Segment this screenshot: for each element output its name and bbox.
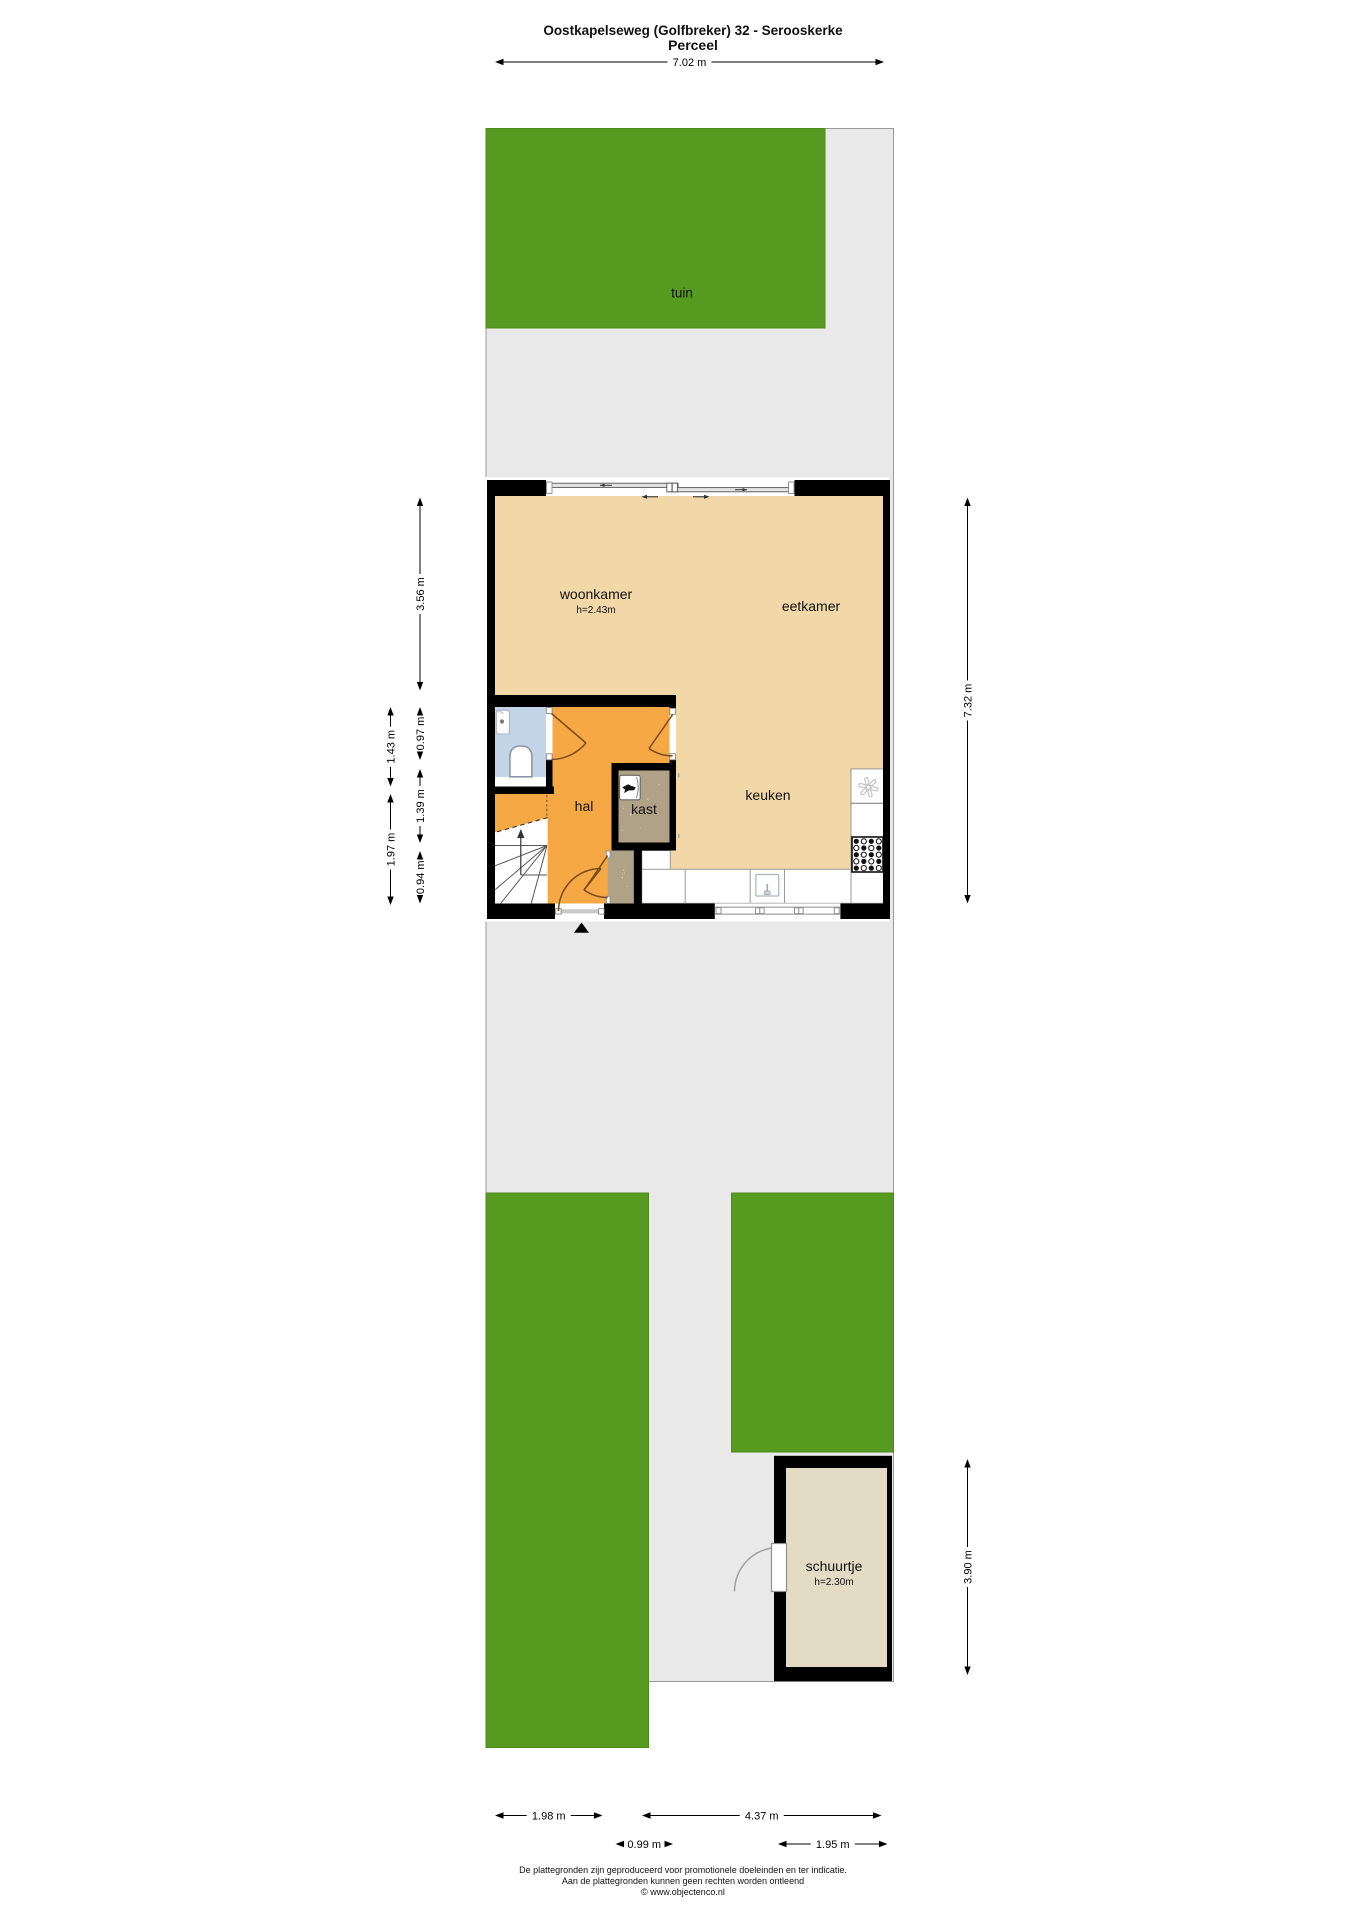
svg-text:Aan de plattegronden kunnen ge: Aan de plattegronden kunnen geen rechten… <box>562 1876 804 1886</box>
svg-text:Perceel: Perceel <box>668 37 718 53</box>
svg-text:0.97 m: 0.97 m <box>415 717 427 751</box>
svg-text:7.02 m: 7.02 m <box>673 57 707 69</box>
svg-text:woonkamer: woonkamer <box>559 586 633 602</box>
svg-text:3.90 m: 3.90 m <box>963 1550 975 1584</box>
svg-text:eetkamer: eetkamer <box>782 598 841 614</box>
svg-text:hal: hal <box>575 798 594 814</box>
svg-text:1.95 m: 1.95 m <box>816 1839 850 1851</box>
svg-text:schuurtje: schuurtje <box>806 1558 863 1574</box>
svg-text:h=2.43m: h=2.43m <box>576 605 615 616</box>
svg-text:1.98 m: 1.98 m <box>532 1811 566 1823</box>
svg-text:© www.objectenco.nl: © www.objectenco.nl <box>641 1887 725 1897</box>
svg-text:tuin: tuin <box>671 286 693 301</box>
svg-text:1.39 m: 1.39 m <box>415 789 427 823</box>
svg-text:1.43 m: 1.43 m <box>386 730 398 764</box>
svg-text:1.97 m: 1.97 m <box>386 833 398 867</box>
svg-text:7.32 m: 7.32 m <box>963 684 975 718</box>
svg-text:De plattegronden zijn geproduc: De plattegronden zijn geproduceerd voor … <box>519 1865 847 1875</box>
svg-text:0.99 m: 0.99 m <box>627 1839 661 1851</box>
svg-text:3.56 m: 3.56 m <box>415 577 427 611</box>
svg-text:kast: kast <box>631 801 657 817</box>
svg-text:0.94 m: 0.94 m <box>415 860 427 894</box>
svg-text:h=2.30m: h=2.30m <box>814 1577 853 1588</box>
svg-text:keuken: keuken <box>745 787 790 803</box>
svg-text:4.37 m: 4.37 m <box>745 1811 779 1823</box>
svg-text:Oostkapelseweg (Golfbreker) 32: Oostkapelseweg (Golfbreker) 32 - Seroosk… <box>543 23 843 38</box>
